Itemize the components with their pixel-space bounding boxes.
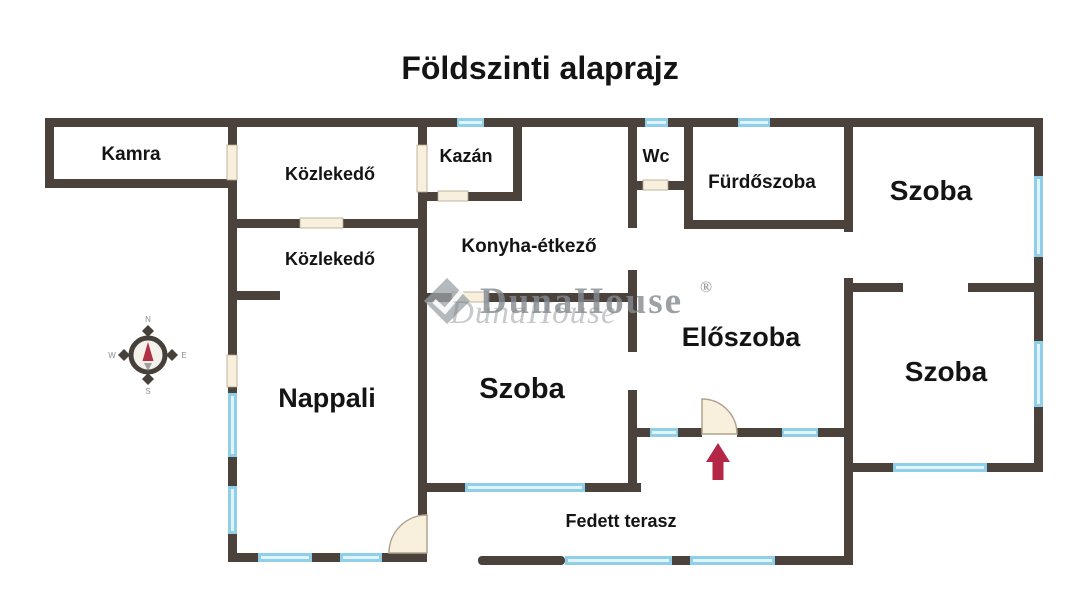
compass-west-label: W xyxy=(108,351,116,360)
watermark-brand-text: DunaHouse xyxy=(480,281,683,322)
compass-east-label: E xyxy=(181,351,186,360)
room-label-szoba-jobb-felso: Szoba xyxy=(890,175,973,206)
room-label-wc: Wc xyxy=(643,146,670,166)
door-kazan-bottom xyxy=(438,191,468,201)
room-label-kozlekedo-also: Közlekedő xyxy=(285,249,375,269)
room-label-kamra: Kamra xyxy=(101,144,161,165)
room-label-konyha-etkezo: Konyha-étkező xyxy=(461,236,596,257)
entrance-arrow-icon xyxy=(706,443,730,480)
room-label-nappali: Nappali xyxy=(278,383,376,413)
floorplan-drawing: Földszinti alaprajz xyxy=(0,0,1080,600)
watermark-registered-mark: ® xyxy=(700,279,714,296)
watermark: DunaHouse DunaHouse ® xyxy=(424,278,714,331)
room-label-szoba-kozep: Szoba xyxy=(479,373,565,405)
room-label-fedett-terasz: Fedett terasz xyxy=(565,511,676,531)
door-left-wall xyxy=(227,355,237,387)
room-label-szoba-jobb-also: Szoba xyxy=(905,356,988,387)
door-kozlekedo xyxy=(300,218,343,228)
entrance-door-arc xyxy=(702,399,737,434)
compass-rose: N E S W xyxy=(108,315,186,396)
compass-south-label: S xyxy=(145,387,150,396)
room-label-eloszoba: Előszoba xyxy=(682,322,802,352)
page-title: Földszinti alaprajz xyxy=(401,50,678,86)
door-wc xyxy=(643,180,668,190)
room-label-kozlekedo-felso: Közlekedő xyxy=(285,164,375,184)
door-kamra xyxy=(227,145,237,180)
room-label-furdoszoba: Fürdőszoba xyxy=(708,172,816,193)
terrace-door-arc xyxy=(389,515,427,553)
compass-north-label: N xyxy=(145,315,151,324)
room-label-kazan: Kazán xyxy=(439,146,492,166)
floorplan-page: Földszinti alaprajz xyxy=(0,0,1080,600)
door-kazan-side xyxy=(417,145,427,192)
